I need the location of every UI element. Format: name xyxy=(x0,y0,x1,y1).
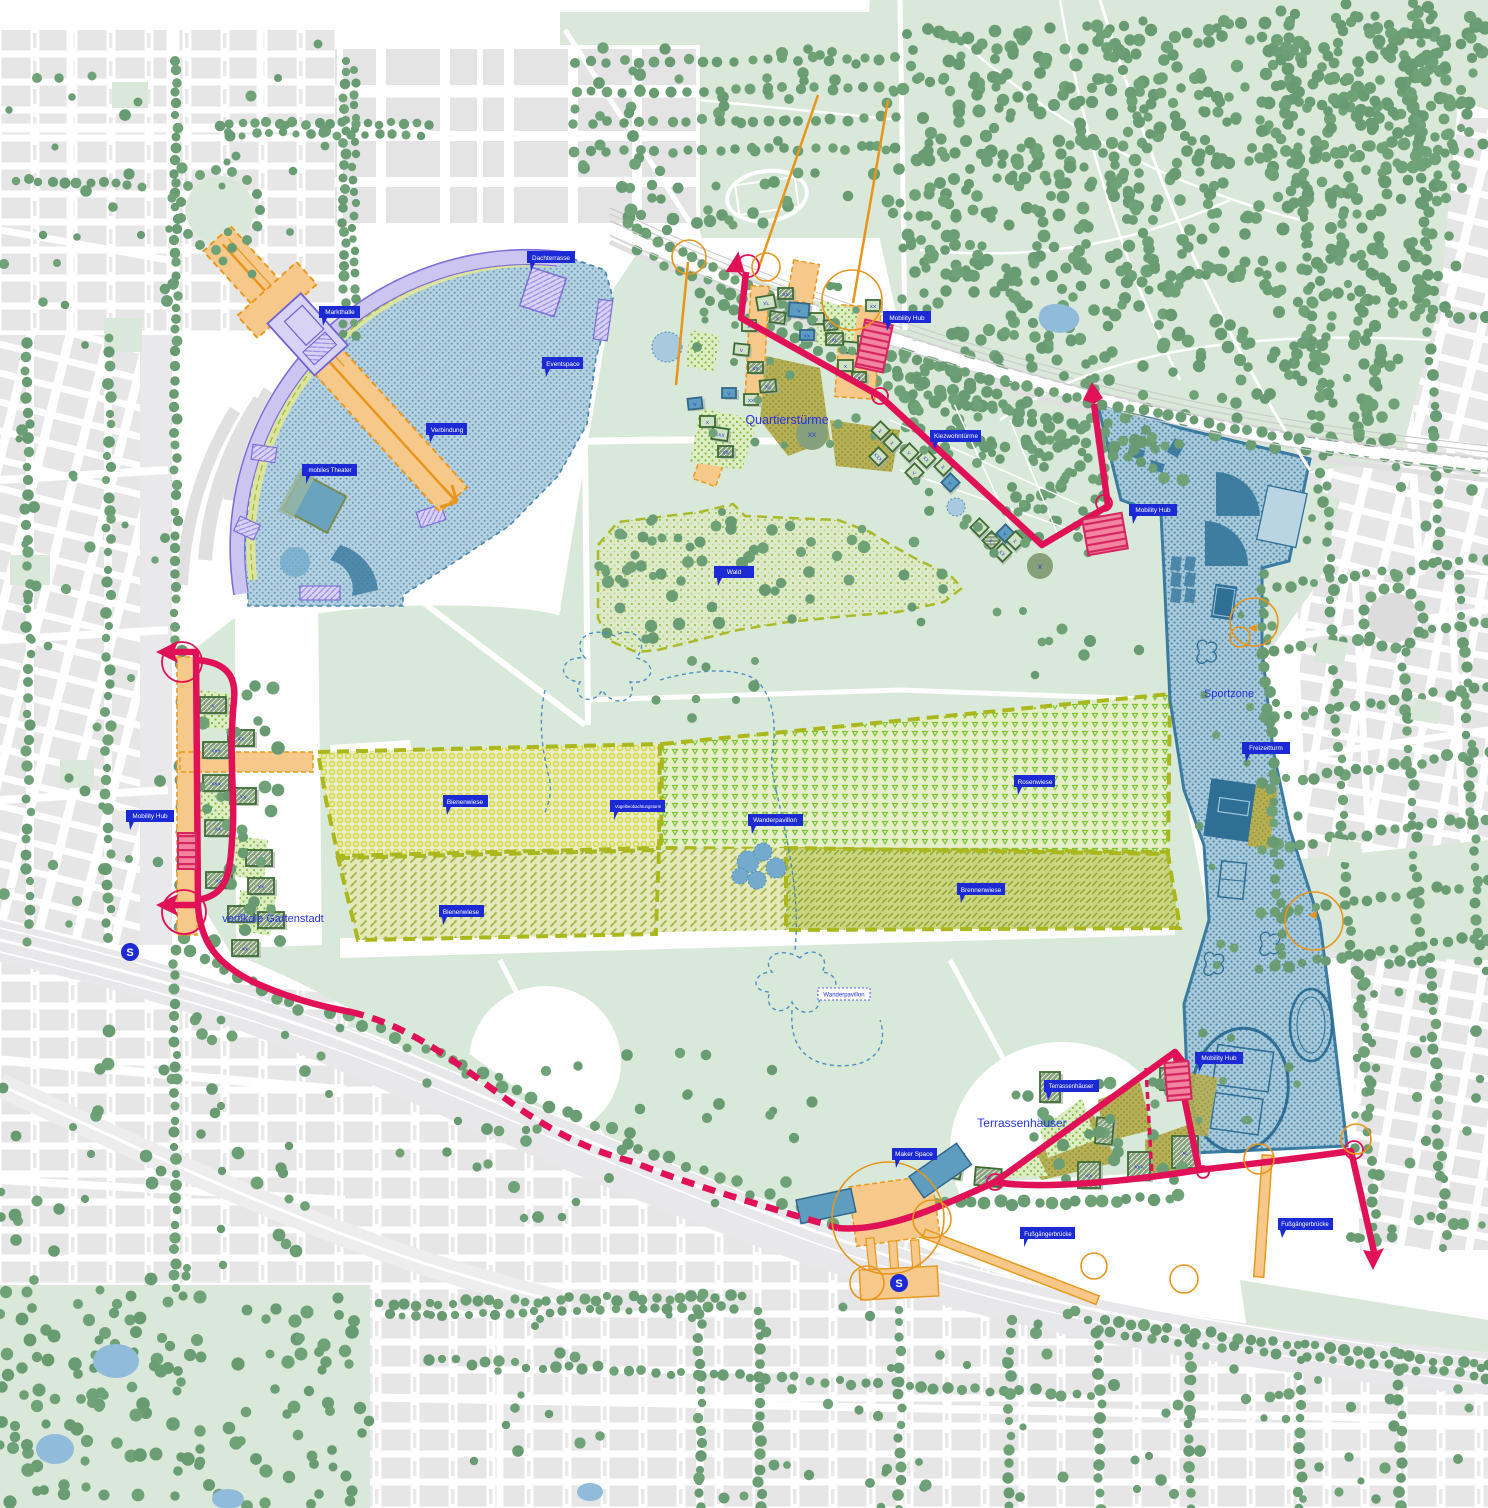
svg-text:XX: XX xyxy=(240,795,247,801)
svg-text:XX: XX xyxy=(870,304,877,310)
svg-text:XX: XX xyxy=(242,947,249,953)
svg-text:Markthalle: Markthalle xyxy=(325,309,355,316)
svg-text:XX: XX xyxy=(804,334,811,340)
svg-text:Brennenwiese: Brennenwiese xyxy=(961,887,1002,894)
svg-text:Terrassenhäuser: Terrassenhäuser xyxy=(1049,1084,1094,1090)
svg-text:XXX: XXX xyxy=(1134,1165,1144,1171)
svg-text:Vogelbeobachtungsturm: Vogelbeobachtungsturm xyxy=(615,804,662,809)
svg-text:Fußgängerbrücke: Fußgängerbrücke xyxy=(1024,1232,1072,1238)
svg-text:mobiles Theater: mobiles Theater xyxy=(308,468,351,474)
svg-text:XX: XX xyxy=(752,366,759,372)
svg-text:Maker Space: Maker Space xyxy=(895,1151,933,1158)
svg-text:Sportzone: Sportzone xyxy=(1204,688,1254,700)
svg-text:Rosenwiese: Rosenwiese xyxy=(1018,779,1053,786)
svg-text:Freizeitturm: Freizeitturm xyxy=(1249,745,1283,752)
svg-text:Kiezwohntürme: Kiezwohntürme xyxy=(934,433,978,440)
svg-text:Bienenwiese: Bienenwiese xyxy=(447,799,484,806)
svg-text:Dachterrasse: Dachterrasse xyxy=(532,255,570,262)
svg-text:Verbindung: Verbindung xyxy=(431,427,464,434)
svg-text:S: S xyxy=(895,1278,902,1290)
svg-text:XX: XX xyxy=(1086,1174,1093,1180)
svg-text:Wanderpavillon: Wanderpavillon xyxy=(753,817,797,824)
svg-text:X: X xyxy=(1038,565,1042,571)
svg-text:XX: XX xyxy=(238,737,245,743)
svg-text:Mobility Hub: Mobility Hub xyxy=(889,315,925,322)
svg-text:Bienenwiese: Bienenwiese xyxy=(443,909,480,916)
svg-text:XX: XX xyxy=(215,827,222,833)
svg-text:Mobility Hub: Mobility Hub xyxy=(132,813,168,820)
svg-text:Eventspace: Eventspace xyxy=(546,361,580,368)
svg-text:Terrassenhäuser: Terrassenhäuser xyxy=(977,1116,1066,1130)
svg-text:Mobility Hub: Mobility Hub xyxy=(1135,507,1171,514)
svg-text:Wald: Wald xyxy=(727,569,742,576)
svg-text:Wanderpavillon: Wanderpavillon xyxy=(823,993,864,999)
svg-text:XL: XL xyxy=(832,338,838,344)
svg-text:XX: XX xyxy=(722,450,729,456)
svg-text:XX: XX xyxy=(808,433,816,439)
svg-text:XX: XX xyxy=(258,885,265,891)
svg-text:XL: XL xyxy=(1182,1151,1188,1157)
svg-text:XXX: XXX xyxy=(211,749,221,755)
svg-text:XL: XL xyxy=(765,384,772,391)
svg-text:vertikale Gartenstadt: vertikale Gartenstadt xyxy=(222,913,324,925)
svg-text:Fußgängerbrücke: Fußgängerbrücke xyxy=(1281,1222,1329,1228)
svg-text:S: S xyxy=(126,947,133,959)
svg-text:XX: XX xyxy=(748,398,755,404)
svg-text:Quartierstürme: Quartierstürme xyxy=(745,413,828,427)
svg-text:XXX: XXX xyxy=(211,782,221,788)
svg-text:Mobility Hub: Mobility Hub xyxy=(1201,1055,1237,1062)
svg-text:XX: XX xyxy=(782,292,789,298)
